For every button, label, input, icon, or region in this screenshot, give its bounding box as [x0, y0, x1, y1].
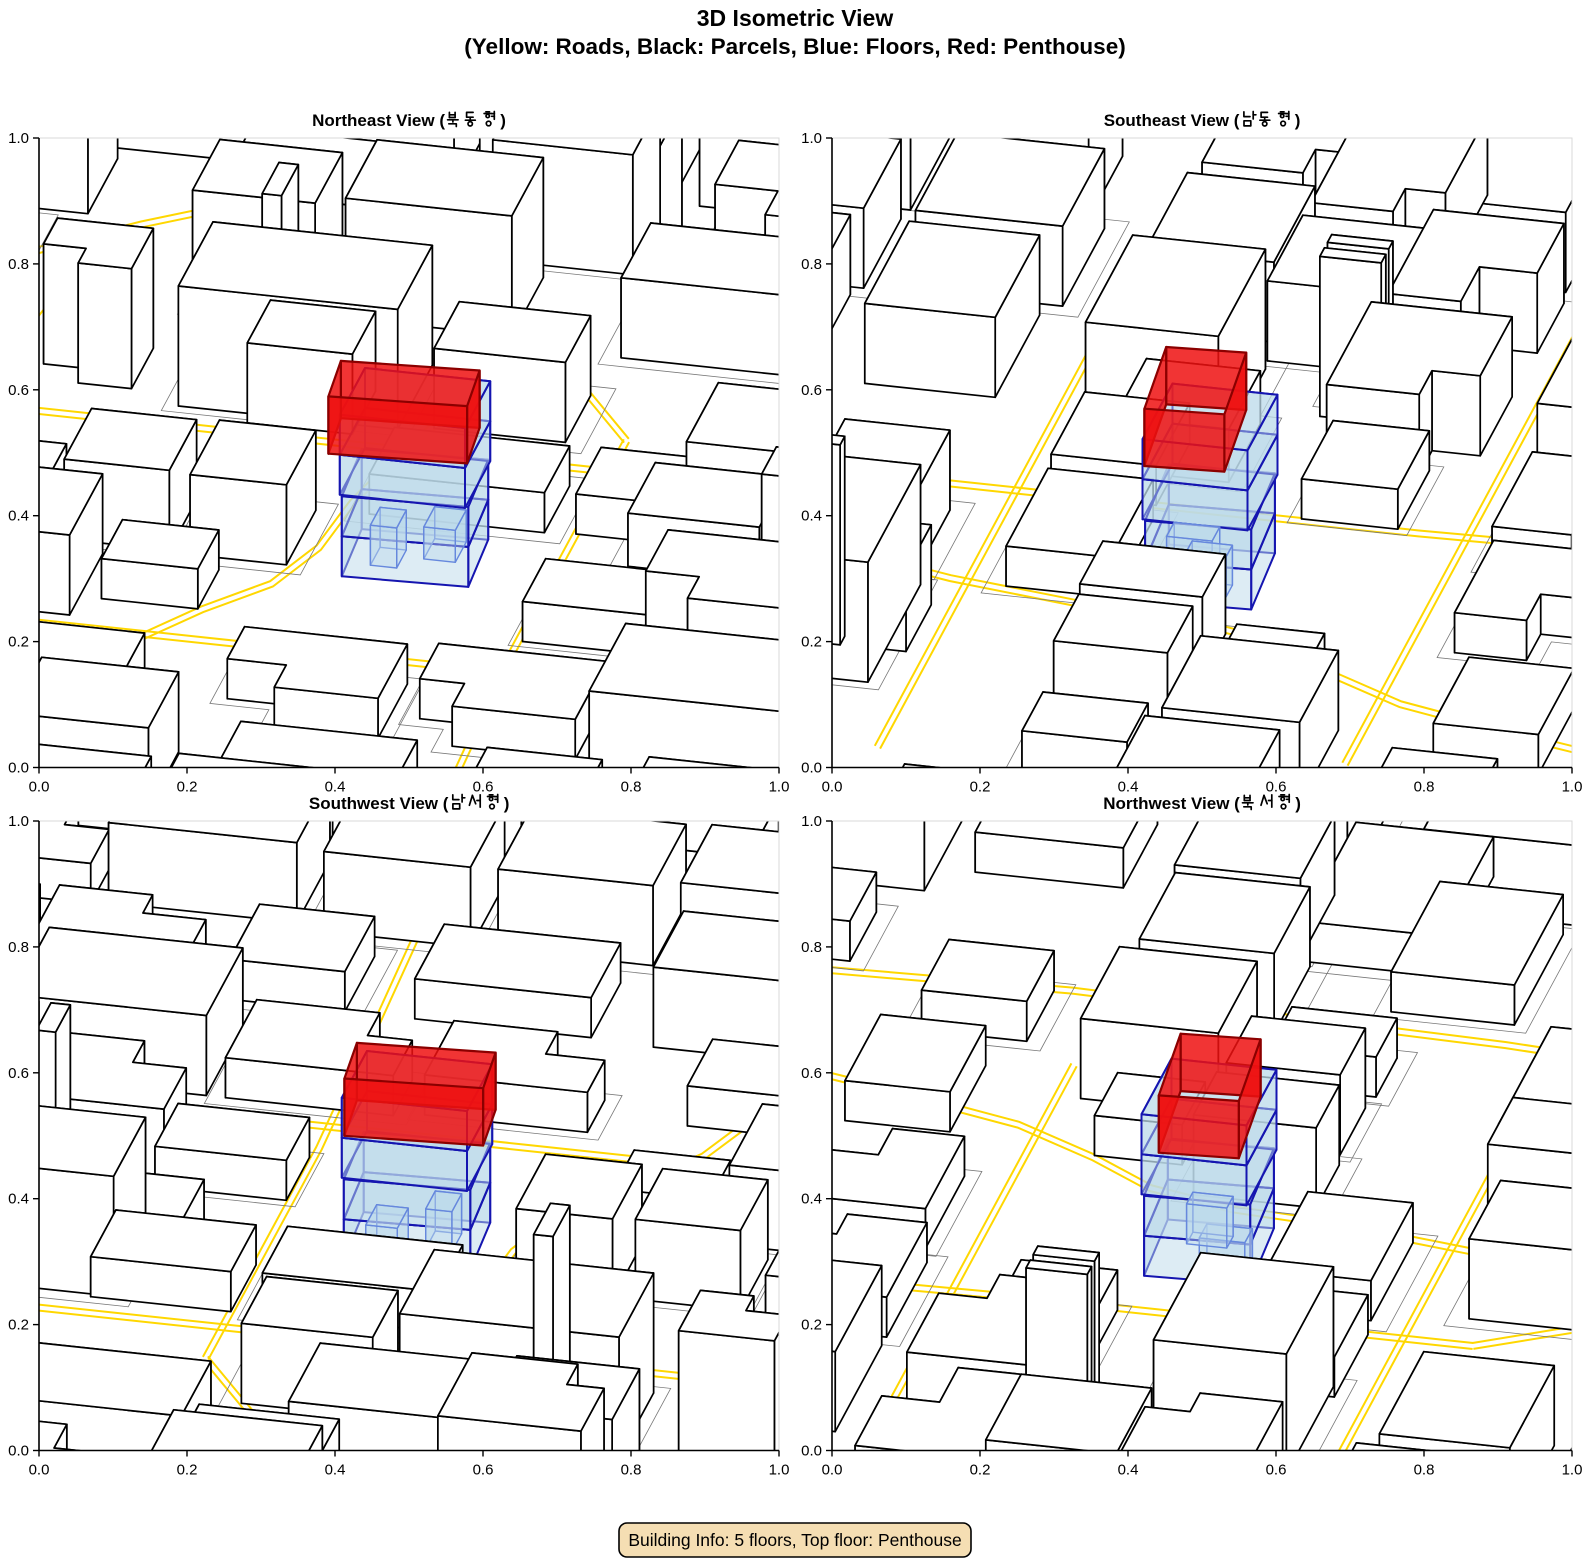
- svg-text:0.4: 0.4: [8, 508, 29, 525]
- svg-text:0.4: 0.4: [1118, 779, 1139, 796]
- svg-text:0.8: 0.8: [1414, 779, 1435, 796]
- svg-text:0.4: 0.4: [325, 1462, 346, 1479]
- svg-text:0.0: 0.0: [822, 1462, 843, 1479]
- svg-text:0.4: 0.4: [1118, 1462, 1139, 1479]
- svg-text:0.0: 0.0: [8, 1443, 29, 1460]
- svg-text:0.6: 0.6: [801, 1065, 822, 1082]
- svg-text:0.2: 0.2: [801, 634, 822, 651]
- svg-text:1.0: 1.0: [1562, 779, 1583, 796]
- svg-text:0.8: 0.8: [801, 939, 822, 956]
- svg-text:0.2: 0.2: [8, 634, 29, 651]
- svg-text:0.6: 0.6: [8, 382, 29, 399]
- svg-text:1.0: 1.0: [1562, 1462, 1583, 1479]
- svg-text:0.0: 0.0: [801, 760, 822, 777]
- svg-text:3D Isometric View: 3D Isometric View: [697, 5, 894, 31]
- svg-text:1.0: 1.0: [769, 779, 790, 796]
- svg-text:0.0: 0.0: [8, 760, 29, 777]
- svg-text:0.0: 0.0: [29, 779, 50, 796]
- svg-text:): ): [1295, 111, 1301, 130]
- svg-text:): ): [504, 794, 510, 813]
- svg-text:0.6: 0.6: [473, 779, 494, 796]
- svg-text:1.0: 1.0: [769, 1462, 790, 1479]
- svg-text:0.8: 0.8: [8, 256, 29, 273]
- svg-text:0.6: 0.6: [1266, 1462, 1287, 1479]
- svg-text:0.8: 0.8: [621, 1462, 642, 1479]
- svg-text:0.6: 0.6: [8, 1065, 29, 1082]
- svg-text:0.8: 0.8: [8, 939, 29, 956]
- svg-text:0.4: 0.4: [801, 508, 822, 525]
- svg-text:(Yellow: Roads, Black: Parcels: (Yellow: Roads, Black: Parcels, Blue: Fl…: [464, 34, 1125, 59]
- svg-text:Northwest View (: Northwest View (: [1103, 794, 1240, 813]
- svg-text:0.2: 0.2: [177, 779, 198, 796]
- svg-text:0.2: 0.2: [177, 1462, 198, 1479]
- svg-text:0.0: 0.0: [29, 1462, 50, 1479]
- svg-text:): ): [500, 111, 506, 130]
- svg-text:1.0: 1.0: [8, 813, 29, 830]
- svg-text:): ): [1295, 794, 1301, 813]
- svg-text:1.0: 1.0: [8, 130, 29, 147]
- svg-text:1.0: 1.0: [801, 813, 822, 830]
- svg-text:0.4: 0.4: [8, 1191, 29, 1208]
- svg-text:0.6: 0.6: [1266, 779, 1287, 796]
- svg-text:0.0: 0.0: [822, 779, 843, 796]
- svg-text:0.0: 0.0: [801, 1443, 822, 1460]
- svg-text:0.4: 0.4: [801, 1191, 822, 1208]
- svg-text:Southeast View (: Southeast View (: [1104, 111, 1240, 130]
- svg-text:0.2: 0.2: [970, 1462, 991, 1479]
- svg-text:0.6: 0.6: [801, 382, 822, 399]
- svg-text:Building Info: 5 floors, Top f: Building Info: 5 floors, Top floor: Pent…: [628, 1530, 961, 1550]
- svg-text:0.4: 0.4: [325, 779, 346, 796]
- svg-text:0.2: 0.2: [801, 1317, 822, 1334]
- svg-text:Northeast View (: Northeast View (: [312, 111, 445, 130]
- svg-text:0.8: 0.8: [1414, 1462, 1435, 1479]
- svg-text:Southwest View (: Southwest View (: [309, 794, 449, 813]
- svg-text:1.0: 1.0: [801, 130, 822, 147]
- svg-text:0.6: 0.6: [473, 1462, 494, 1479]
- svg-text:0.8: 0.8: [621, 779, 642, 796]
- svg-text:0.2: 0.2: [8, 1317, 29, 1334]
- svg-text:0.8: 0.8: [801, 256, 822, 273]
- svg-text:0.2: 0.2: [970, 779, 991, 796]
